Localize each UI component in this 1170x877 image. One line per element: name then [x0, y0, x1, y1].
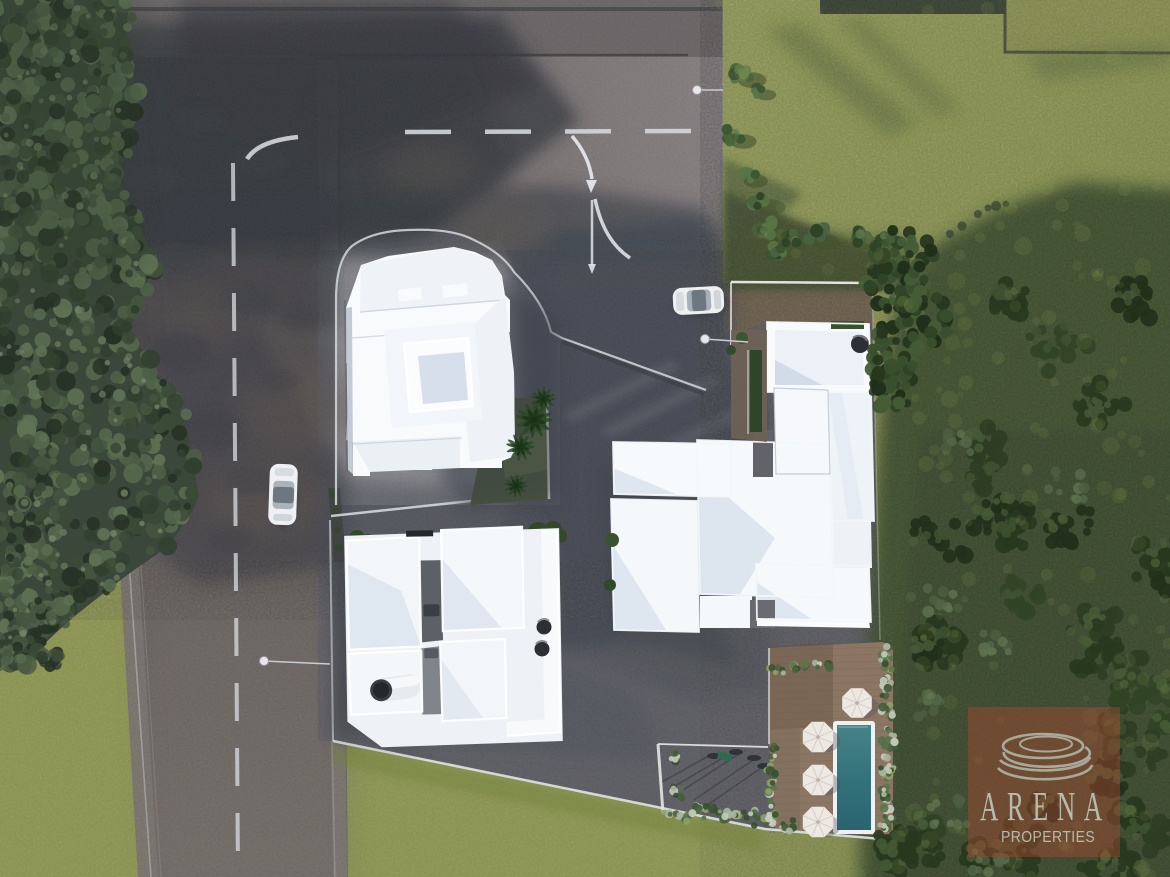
svg-text:ARENA: ARENA	[980, 785, 1111, 829]
svg-text:PROPERTIES: PROPERTIES	[1001, 829, 1095, 846]
